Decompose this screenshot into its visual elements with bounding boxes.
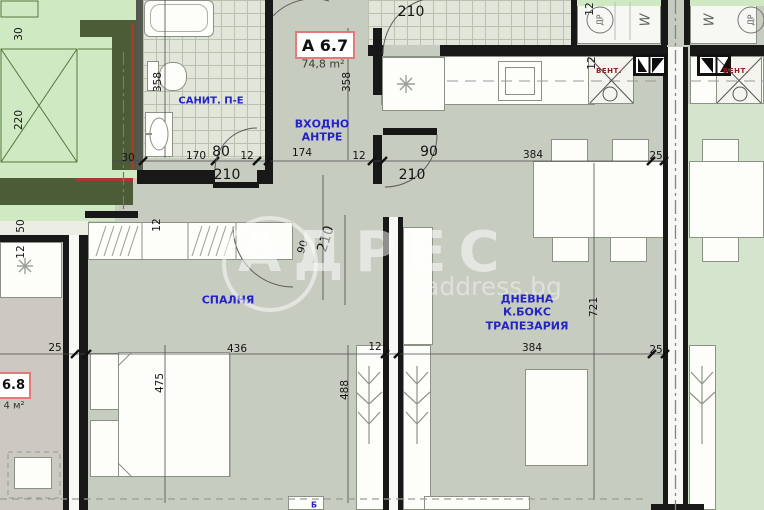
left-party-wall-b — [79, 235, 88, 510]
living-label-line1: ДНЕВНА — [501, 293, 554, 306]
window-strip-right-apartment — [689, 345, 716, 510]
living-rug — [525, 369, 588, 466]
dim-door-80: 80 — [212, 144, 230, 160]
top-room-wall-a — [571, 0, 577, 45]
hall-label-line2: АНТРЕ — [302, 131, 343, 144]
hall-right-wall-upper — [373, 28, 382, 95]
dim-bedroom-door-210: 210 — [314, 224, 337, 254]
dim-wall-30: 30 — [121, 152, 134, 164]
dim-wall-12b: 12 — [352, 150, 365, 162]
washbasin — [145, 112, 173, 157]
dim-door-210b: 210 — [399, 167, 426, 183]
dim-wardrobe-12: 12 — [151, 218, 163, 231]
dim-living-488: 488 — [339, 380, 351, 400]
apartment-label: A 6.7 — [302, 36, 348, 55]
dim-wall-12a: 12 — [240, 150, 253, 162]
dim-25-top: 25 — [649, 150, 662, 162]
bedroom-living-wall-core — [389, 217, 398, 510]
dining-chair — [551, 139, 588, 162]
top-room-wall-c — [684, 0, 690, 45]
apartment-label-box: A 6.7 — [295, 31, 355, 59]
party-wall-right — [683, 47, 688, 510]
dim-door-210-top: 210 — [398, 4, 425, 20]
dim-hall-358: 358 — [341, 72, 353, 92]
bottom-window-center — [424, 496, 530, 510]
dryer-circle-right-label: ДР — [747, 14, 756, 25]
left-apartment-chair — [14, 457, 52, 489]
dining-chair — [612, 139, 649, 162]
dim-living-384-bottom: 384 — [522, 342, 542, 354]
dining-chair-mirrored — [702, 139, 739, 162]
bathtub-inner — [150, 4, 208, 32]
dim-terrace-30: 30 — [13, 27, 25, 40]
dining-table — [533, 161, 664, 238]
dim-hall-174: 174 — [292, 147, 312, 159]
living-label-line3: ТРАПЕЗАРИЯ — [486, 320, 569, 333]
dim-wall-12c: 12 — [368, 341, 381, 353]
bathroom-bottom-wall — [137, 170, 215, 184]
kitchen-sink-inner — [505, 67, 535, 95]
dryer-circle-left-label: ДР — [596, 14, 605, 25]
top-room-wall-b — [661, 0, 668, 45]
left-apartment-cabinet — [0, 242, 62, 298]
dining-chair — [610, 237, 647, 262]
dim-bedroom-436: 436 — [227, 343, 247, 355]
bottom-window-sill-bar — [651, 504, 704, 510]
window-strip-living — [403, 345, 431, 510]
dim-bed-475: 475 — [154, 373, 166, 393]
apartment-area: 74,8 m² — [301, 58, 344, 71]
kitchen-top-wall-left — [368, 45, 383, 56]
hall-left-wall — [265, 0, 273, 184]
dining-chair-mirrored — [702, 237, 739, 262]
dim-25-left: 25 — [48, 342, 61, 354]
bottom-window-left — [288, 496, 324, 510]
dim-door-210a: 210 — [214, 167, 241, 183]
party-wall-core — [668, 47, 683, 510]
dim-living-384-top: 384 — [523, 149, 543, 161]
floor-plan: ДР W W ДР ВЕНТ. ВЕНТ. 6.8 4 м² A 6 — [0, 0, 764, 510]
dining-table-mirrored — [689, 161, 764, 238]
party-wall-left — [663, 47, 668, 510]
dim-left-12: 12 — [15, 245, 27, 258]
dim-bathroom-358: 358 — [152, 72, 164, 92]
left-party-wall-core — [69, 235, 79, 510]
living-label-line2: К.БОКС — [503, 306, 551, 319]
left-apartment-top-wall — [0, 235, 64, 242]
dim-top-12: 12 — [584, 2, 596, 15]
neighbor-apartment-label-box: 6.8 — [0, 372, 31, 399]
bedroom-top-wall-stub — [85, 211, 138, 218]
parapet-wall-top-stub — [80, 20, 114, 37]
bathroom-label: САНИТ. П-Е — [178, 96, 243, 107]
bottom-label-fragment: Б — [311, 501, 317, 510]
parapet-wall-bottom — [0, 178, 133, 205]
bed — [118, 352, 230, 477]
left-margin-strip — [0, 221, 88, 235]
flue-box-left — [633, 54, 667, 76]
vent-label-right: ВЕНТ. — [723, 67, 749, 75]
top-room-right-green — [690, 0, 764, 6]
dining-chair — [552, 237, 589, 262]
tall-cabinet-fridge — [403, 227, 433, 345]
washer-symbol-right: W — [703, 14, 718, 27]
red-line-vertical — [131, 23, 134, 170]
dim-living-721: 721 — [588, 297, 600, 317]
dim-bedroom-door-90: 90 — [295, 239, 311, 255]
cooktop-block — [382, 57, 445, 111]
dim-vent-12: 12 — [586, 56, 598, 69]
hall-label-line1: ВХОДНО — [295, 118, 350, 131]
left-party-wall-a — [63, 235, 69, 510]
dim-bathroom-170: 170 — [186, 150, 206, 162]
neighbor-apartment-label: 6.8 — [2, 378, 25, 393]
dim-door-90a: 90 — [420, 144, 438, 160]
window-strip-bedroom — [356, 345, 384, 510]
hall-right-wall-lower — [373, 135, 382, 184]
dim-25-bottom: 25 — [649, 344, 662, 356]
red-line-horizontal — [75, 178, 133, 181]
bedroom-label: СПАЛНЯ — [202, 294, 255, 307]
wall-shadow-strip — [136, 0, 143, 170]
wardrobe — [88, 222, 293, 260]
vent-label-left: ВЕНТ. — [596, 67, 622, 75]
bedroom-living-wall-b — [398, 217, 403, 510]
neighbor-apartment-area: 4 м² — [3, 401, 24, 412]
bedroom-living-wall-a — [383, 217, 389, 510]
washer-symbol-left: W — [639, 14, 654, 27]
dim-terrace-220: 220 — [13, 110, 25, 130]
dim-left-50: 50 — [15, 219, 27, 232]
